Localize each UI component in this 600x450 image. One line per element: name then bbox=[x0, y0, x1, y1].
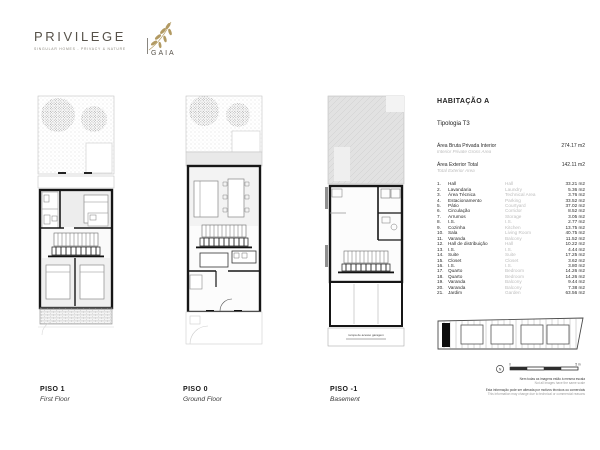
brand-name: PRIVILEGE bbox=[34, 30, 126, 43]
brand-logo: PRIVILEGE SINGULAR HOMES - PRIVACY & NAT… bbox=[34, 30, 126, 51]
scale-bar bbox=[510, 367, 578, 370]
scale-start-label: 0 bbox=[509, 363, 511, 367]
table-row: 21. Jardim Garden 63.56 m2 bbox=[437, 290, 585, 295]
floor-name: Ground Floor bbox=[183, 396, 222, 403]
summary-row: Área Bruta Privada Interior Interior Pri… bbox=[437, 143, 585, 155]
summary-label-en: Interior Private Gross Area bbox=[437, 149, 585, 155]
disclaimer-en: Not all images have the same scale bbox=[486, 381, 585, 385]
tree-texture bbox=[189, 96, 219, 126]
unit-title: HABITAÇÃO A bbox=[437, 98, 585, 106]
row-number: 21. bbox=[437, 290, 448, 295]
scale-end-label: 5 m bbox=[575, 363, 581, 367]
tree-texture bbox=[41, 98, 75, 132]
room-name-en: Garden bbox=[505, 290, 551, 295]
summary-value: 142.11 m2 bbox=[562, 162, 585, 168]
summary-value: 274.17 m2 bbox=[561, 143, 585, 149]
summary-row: Área Exterior Total Total Exterior Area … bbox=[437, 162, 585, 174]
room-area: 63.56 m2 bbox=[551, 290, 585, 295]
floor-label-piso-1: PISO 1 First Floor bbox=[40, 386, 70, 403]
garage-ramp-label: rampa de acesso garagem bbox=[348, 333, 384, 337]
floor-plan-basement: rampa de acesso garagem bbox=[324, 95, 408, 347]
leaf-branch-icon bbox=[143, 18, 177, 54]
disclaimer-notes: Nem todas as imagens estão à mesma escal… bbox=[486, 377, 585, 399]
north-label: N bbox=[499, 368, 502, 372]
area-summary: Área Bruta Privada Interior Interior Pri… bbox=[437, 143, 585, 173]
floor-name: First Floor bbox=[40, 396, 70, 403]
plan-sheet-page: PRIVILEGE SINGULAR HOMES - PRIVACY & NAT… bbox=[0, 0, 600, 450]
highlighted-unit bbox=[442, 323, 450, 347]
disclaimer: Esta informação pode ser alterada por mo… bbox=[486, 388, 585, 396]
unit-typology: Tipologia T3 bbox=[437, 121, 585, 128]
tree-texture bbox=[81, 106, 107, 132]
floor-label-piso-minus-1: PISO -1 Basement bbox=[330, 386, 360, 403]
unit-info-panel: HABITAÇÃO A Tipologia T3 Área Bruta Priv… bbox=[437, 98, 585, 296]
floor-code: PISO 0 bbox=[183, 386, 222, 394]
north-and-scale: N 0 5 m bbox=[494, 360, 586, 376]
disclaimer-en: This information may change due to techn… bbox=[486, 392, 585, 396]
floor-code: PISO 1 bbox=[40, 386, 70, 394]
summary-label-en: Total Exterior Area bbox=[437, 168, 585, 174]
floor-plan-first-floor bbox=[34, 95, 118, 335]
floor-label-piso-0: PISO 0 Ground Floor bbox=[183, 386, 222, 403]
brand-tagline: SINGULAR HOMES - PRIVACY & NATURE bbox=[34, 47, 126, 51]
floor-code: PISO -1 bbox=[330, 386, 360, 394]
room-name-pt: Jardim bbox=[448, 290, 505, 295]
floor-name: Basement bbox=[330, 396, 360, 403]
logo-divider bbox=[147, 38, 148, 54]
site-key-plan bbox=[435, 316, 587, 358]
floor-plan-ground-floor bbox=[182, 95, 266, 347]
brand-sub-name: GAIA bbox=[151, 50, 176, 57]
tree-texture bbox=[226, 103, 250, 127]
disclaimer: Nem todas as imagens estão à mesma escal… bbox=[486, 377, 585, 385]
area-table: 1. Hall Hall 33.21 m2 2. Lavandaria Laun… bbox=[437, 181, 585, 296]
